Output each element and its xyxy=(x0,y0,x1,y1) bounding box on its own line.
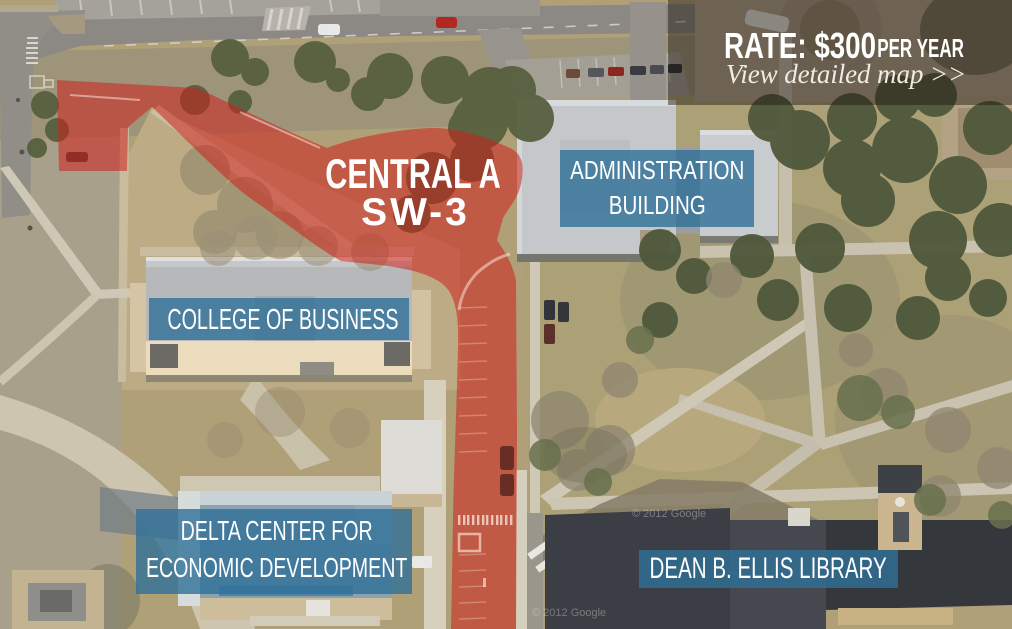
svg-text:© 2012 Google: © 2012 Google xyxy=(632,508,706,520)
svg-text:© 2012 Google: © 2012 Google xyxy=(532,607,606,619)
